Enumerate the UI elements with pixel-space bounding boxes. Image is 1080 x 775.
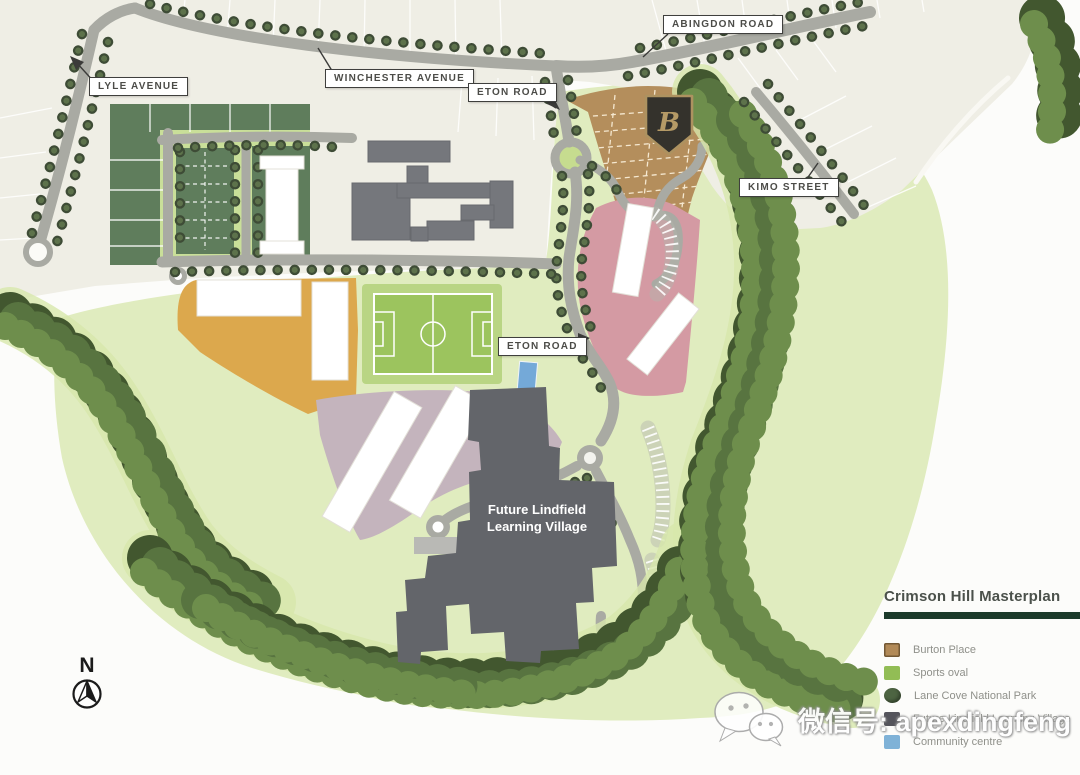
road-label-winchester-avenue: WINCHESTER AVENUE [325, 69, 474, 88]
north-compass: N [64, 652, 110, 721]
masterplan-map: B LYLE AVENUE WINCHESTER AVENUE ETON ROA… [0, 0, 1080, 775]
legend-title: Crimson Hill Masterplan [884, 588, 1080, 605]
legend-item-lane-cove-national-park: Lane Cove National Park [884, 688, 1080, 703]
north-compass-icon: N [64, 652, 110, 716]
road-label-lyle-avenue: LYLE AVENUE [89, 77, 188, 96]
legend-item-sports-oval: Sports oval [884, 665, 1080, 680]
road-label-eton-road-top: ETON ROAD [468, 83, 557, 102]
burton-badge-monogram: B [657, 108, 680, 138]
legend-item-community-centre: Community centre [884, 734, 1080, 749]
legend-panel: Crimson Hill Masterplan Burton Place Spo… [884, 588, 1080, 757]
lyle-culdesac [26, 240, 50, 264]
north-label: N [79, 654, 94, 677]
legend-swatch-community-centre [884, 735, 900, 749]
estate-bottom-road [162, 260, 556, 264]
sports-oval [362, 284, 502, 384]
road-label-abingdon-road: ABINGDON ROAD [663, 15, 783, 34]
legend-swatch-sports-oval [884, 666, 900, 680]
legend-swatch-burton-place [884, 643, 900, 657]
legend-divider-bar [884, 612, 1080, 619]
legend-item-learning-village: Future Lindfield Learning Village [884, 711, 1080, 726]
legend-item-burton-place: Burton Place [884, 642, 1080, 657]
legend-swatch-lane-cove [884, 688, 901, 703]
legend-swatch-learning-village [884, 712, 900, 726]
estate-white-building [260, 156, 304, 254]
road-label-eton-road-mid: ETON ROAD [498, 337, 587, 356]
learning-village-label: Future Lindfield Learning Village [462, 502, 612, 536]
road-label-kimo-street: KIMO STREET [739, 178, 839, 197]
